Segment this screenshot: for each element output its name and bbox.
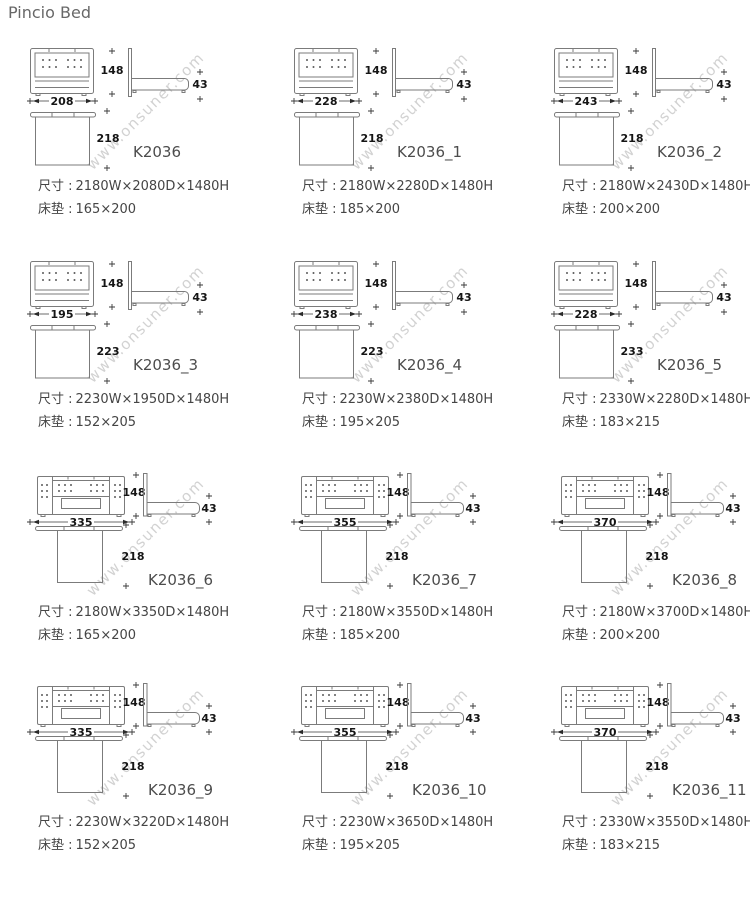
size-value: 2230W×3650D×1480H	[340, 815, 494, 830]
mattress-value: 183×215	[600, 838, 661, 853]
model-name: K2036_4	[397, 356, 462, 374]
height-dimension-line: 148	[365, 48, 388, 97]
height-dimension-line: 148	[101, 48, 124, 97]
side-view	[129, 262, 189, 310]
height-dimension-line: 148	[647, 682, 670, 729]
product-variant-cell: www.onsuner.com	[28, 678, 263, 890]
side-height-dimension: 43	[716, 78, 731, 91]
side-height-dimension-line: 43	[201, 493, 216, 525]
size-label: 尺寸 :	[38, 605, 73, 620]
depth-dimension: 218	[361, 132, 384, 145]
width-dimension: 228	[315, 95, 338, 108]
tufting-dots	[42, 59, 82, 68]
mattress-label: 床垫 :	[38, 202, 73, 217]
model-name: K2036_9	[148, 781, 213, 799]
front-view	[295, 262, 358, 309]
width-dimension: 370	[594, 516, 617, 529]
depth-dimension-line: 218	[361, 108, 384, 171]
width-dimension: 238	[315, 308, 338, 321]
mattress-value: 200×200	[600, 202, 661, 217]
side-height-dimension-line: 43	[192, 282, 207, 315]
mattress-value: 200×200	[600, 628, 661, 643]
depth-dimension-line: 218	[97, 108, 120, 171]
depth-dimension-line: 218	[386, 732, 409, 799]
front-view	[31, 262, 94, 309]
size-spec: 尺寸 :2230W×2380D×1480H	[302, 388, 493, 407]
side-view	[408, 684, 464, 727]
mattress-value: 152×205	[76, 838, 137, 853]
model-name: K2036_8	[672, 571, 737, 589]
size-spec: 尺寸 :2330W×3550D×1480H	[562, 811, 750, 830]
front-view	[302, 687, 389, 727]
mattress-spec: 床垫 :195×205	[302, 834, 400, 853]
depth-dimension: 218	[97, 132, 120, 145]
product-variant-cell: www.onsuner.com 243	[552, 42, 750, 254]
mattress-label: 床垫 :	[562, 415, 597, 430]
mattress-spec: 床垫 :195×205	[302, 411, 400, 430]
mattress-value: 165×200	[76, 202, 137, 217]
size-label: 尺寸 :	[562, 392, 597, 407]
width-dimension-line: 228	[551, 308, 622, 322]
mattress-value: 185×200	[340, 202, 401, 217]
width-dimension: 208	[51, 95, 74, 108]
front-view	[38, 687, 125, 727]
top-view	[295, 326, 360, 379]
mattress-label: 床垫 :	[302, 415, 337, 430]
side-view	[129, 49, 189, 97]
tufting-dots	[306, 272, 346, 281]
model-name: K2036	[133, 143, 181, 161]
depth-dimension-line: 218	[621, 108, 644, 171]
depth-dimension: 218	[122, 760, 145, 773]
depth-dimension-line: 233	[621, 321, 644, 384]
side-height-dimension: 43	[456, 78, 471, 91]
side-view	[653, 262, 713, 310]
depth-dimension-line: 218	[386, 522, 409, 589]
product-variant-cell: www.onsuner.com 228	[552, 255, 750, 467]
size-label: 尺寸 :	[302, 179, 337, 194]
mattress-spec: 床垫 :183×215	[562, 834, 660, 853]
mattress-spec: 床垫 :152×205	[38, 411, 136, 430]
depth-dimension-line: 218	[646, 522, 669, 589]
height-dimension-line: 148	[625, 261, 648, 310]
size-value: 2180W×2080D×1480H	[76, 179, 230, 194]
mattress-spec: 床垫 :200×200	[562, 198, 660, 217]
top-view	[36, 737, 123, 793]
top-view	[555, 113, 620, 166]
size-value: 2330W×2280D×1480H	[600, 392, 750, 407]
width-dimension-line: 243	[551, 95, 622, 109]
mattress-label: 床垫 :	[302, 838, 337, 853]
mattress-spec: 床垫 :165×200	[38, 624, 136, 643]
width-dimension: 370	[594, 726, 617, 739]
side-height-dimension-line: 43	[716, 69, 731, 102]
depth-dimension-line: 223	[97, 321, 120, 384]
width-dimension: 243	[575, 95, 598, 108]
side-height-dimension: 43	[725, 712, 740, 725]
front-view	[555, 49, 618, 96]
height-dimension-line: 148	[123, 472, 146, 519]
height-dimension: 148	[123, 696, 146, 709]
height-dimension: 148	[101, 64, 124, 77]
mattress-value: 183×215	[600, 415, 661, 430]
product-variant-cell: www.onsuner.com	[28, 468, 263, 680]
side-height-dimension: 43	[192, 291, 207, 304]
product-grid: www.onsuner.com 208	[0, 0, 750, 897]
size-spec: 尺寸 :2180W×2430D×1480H	[562, 175, 750, 194]
width-dimension-line: 195	[27, 308, 98, 322]
height-dimension: 148	[365, 277, 388, 290]
side-height-dimension: 43	[456, 291, 471, 304]
size-spec: 尺寸 :2180W×2080D×1480H	[38, 175, 229, 194]
front-view	[295, 49, 358, 96]
size-spec: 尺寸 :2180W×3350D×1480H	[38, 601, 229, 620]
size-label: 尺寸 :	[562, 179, 597, 194]
size-label: 尺寸 :	[38, 179, 73, 194]
model-name: K2036_5	[657, 356, 722, 374]
side-height-dimension-line: 43	[456, 69, 471, 102]
depth-dimension: 218	[122, 550, 145, 563]
width-dimension-line: 228	[291, 95, 362, 109]
depth-dimension: 218	[386, 760, 409, 773]
height-dimension-line: 148	[123, 682, 146, 729]
height-dimension: 148	[647, 486, 670, 499]
size-value: 2230W×2380D×1480H	[340, 392, 494, 407]
top-view	[36, 527, 123, 583]
height-dimension: 148	[625, 64, 648, 77]
bed-technical-drawing: 355 148 43 218	[292, 468, 527, 600]
product-variant-cell: www.onsuner.com	[552, 468, 750, 680]
size-spec: 尺寸 :2230W×1950D×1480H	[38, 388, 229, 407]
product-variant-cell: www.onsuner.com	[292, 468, 527, 680]
depth-dimension: 218	[621, 132, 644, 145]
side-height-dimension: 43	[201, 502, 216, 515]
side-height-dimension-line: 43	[192, 69, 207, 102]
mattress-spec: 床垫 :200×200	[562, 624, 660, 643]
top-view	[560, 527, 647, 583]
top-view	[560, 737, 647, 793]
mattress-label: 床垫 :	[562, 628, 597, 643]
mattress-value: 195×205	[340, 415, 401, 430]
height-dimension: 148	[123, 486, 146, 499]
depth-dimension-line: 218	[646, 732, 669, 799]
size-spec: 尺寸 :2180W×3700D×1480H	[562, 601, 750, 620]
size-label: 尺寸 :	[302, 815, 337, 830]
size-value: 2230W×3220D×1480H	[76, 815, 230, 830]
side-view	[408, 474, 464, 517]
product-variant-cell: www.onsuner.com	[552, 678, 750, 890]
side-view	[144, 474, 200, 517]
side-height-dimension: 43	[192, 78, 207, 91]
side-view	[393, 49, 453, 97]
mattress-label: 床垫 :	[302, 202, 337, 217]
tufting-dots	[566, 59, 606, 68]
bed-technical-drawing: 355 148 43 218	[292, 678, 527, 810]
side-height-dimension: 43	[201, 712, 216, 725]
side-height-dimension: 43	[716, 291, 731, 304]
top-view	[555, 326, 620, 379]
width-dimension: 195	[51, 308, 74, 321]
mattress-label: 床垫 :	[562, 202, 597, 217]
size-value: 2180W×3700D×1480H	[600, 605, 750, 620]
model-name: K2036_3	[133, 356, 198, 374]
side-view	[668, 474, 724, 517]
width-dimension: 355	[334, 726, 357, 739]
top-view	[295, 113, 360, 166]
mattress-spec: 床垫 :152×205	[38, 834, 136, 853]
mattress-spec: 床垫 :183×215	[562, 411, 660, 430]
depth-dimension: 223	[361, 345, 384, 358]
mattress-label: 床垫 :	[562, 838, 597, 853]
product-variant-cell: www.onsuner.com 228	[292, 42, 527, 254]
width-dimension: 335	[70, 516, 93, 529]
depth-dimension-line: 223	[361, 321, 384, 384]
model-name: K2036_7	[412, 571, 477, 589]
depth-dimension-line: 218	[122, 732, 145, 799]
tufting-dots	[566, 272, 606, 281]
side-height-dimension: 43	[725, 502, 740, 515]
size-label: 尺寸 :	[38, 815, 73, 830]
side-height-dimension: 43	[465, 502, 480, 515]
side-view	[393, 262, 453, 310]
model-name: K2036_11	[672, 781, 747, 799]
tufting-dots	[42, 272, 82, 281]
mattress-label: 床垫 :	[38, 415, 73, 430]
depth-dimension: 223	[97, 345, 120, 358]
height-dimension: 148	[387, 696, 410, 709]
size-value: 2180W×2430D×1480H	[600, 179, 750, 194]
product-variant-cell: www.onsuner.com 195	[28, 255, 263, 467]
depth-dimension: 218	[646, 760, 669, 773]
side-height-dimension-line: 43	[465, 703, 480, 735]
height-dimension: 148	[365, 64, 388, 77]
side-height-dimension-line: 43	[201, 703, 216, 735]
width-dimension: 355	[334, 516, 357, 529]
height-dimension: 148	[647, 696, 670, 709]
size-spec: 尺寸 :2330W×2280D×1480H	[562, 388, 750, 407]
size-label: 尺寸 :	[562, 815, 597, 830]
side-height-dimension-line: 43	[725, 703, 740, 735]
height-dimension-line: 148	[625, 48, 648, 97]
tufting-dots	[306, 59, 346, 68]
size-value: 2180W×2280D×1480H	[340, 179, 494, 194]
depth-dimension: 218	[646, 550, 669, 563]
width-dimension-line: 208	[27, 95, 98, 109]
depth-dimension: 233	[621, 345, 644, 358]
size-spec: 尺寸 :2180W×2280D×1480H	[302, 175, 493, 194]
mattress-value: 165×200	[76, 628, 137, 643]
bed-technical-drawing: 335 148 43 218	[28, 468, 263, 600]
depth-dimension: 218	[386, 550, 409, 563]
top-view	[31, 326, 96, 379]
top-view	[31, 113, 96, 166]
front-view	[562, 477, 649, 517]
model-name: K2036_6	[148, 571, 213, 589]
product-variant-cell: www.onsuner.com 208	[28, 42, 263, 254]
size-value: 2230W×1950D×1480H	[76, 392, 230, 407]
height-dimension: 148	[625, 277, 648, 290]
height-dimension-line: 148	[365, 261, 388, 310]
size-spec: 尺寸 :2180W×3550D×1480H	[302, 601, 493, 620]
front-view	[31, 49, 94, 96]
width-dimension: 228	[575, 308, 598, 321]
mattress-spec: 床垫 :165×200	[38, 198, 136, 217]
model-name: K2036_10	[412, 781, 487, 799]
front-view	[555, 262, 618, 309]
side-height-dimension-line: 43	[456, 282, 471, 315]
front-view	[562, 687, 649, 727]
side-view	[668, 684, 724, 727]
mattress-value: 185×200	[340, 628, 401, 643]
size-value: 2180W×3350D×1480H	[76, 605, 230, 620]
side-view	[144, 684, 200, 727]
side-view	[653, 49, 713, 97]
size-spec: 尺寸 :2230W×3220D×1480H	[38, 811, 229, 830]
height-dimension: 148	[101, 277, 124, 290]
mattress-spec: 床垫 :185×200	[302, 624, 400, 643]
size-label: 尺寸 :	[302, 392, 337, 407]
mattress-label: 床垫 :	[302, 628, 337, 643]
side-height-dimension: 43	[465, 712, 480, 725]
size-spec: 尺寸 :2230W×3650D×1480H	[302, 811, 493, 830]
size-label: 尺寸 :	[562, 605, 597, 620]
spec-sheet-page: Pincio Bed www.onsuner.com 208	[0, 0, 750, 897]
front-view	[302, 477, 389, 517]
height-dimension-line: 148	[387, 472, 410, 519]
product-variant-cell: www.onsuner.com 238	[292, 255, 527, 467]
side-height-dimension-line: 43	[725, 493, 740, 525]
depth-dimension-line: 218	[122, 522, 145, 589]
size-value: 2180W×3550D×1480H	[340, 605, 494, 620]
product-variant-cell: www.onsuner.com	[292, 678, 527, 890]
height-dimension: 148	[387, 486, 410, 499]
size-label: 尺寸 :	[38, 392, 73, 407]
height-dimension-line: 148	[647, 472, 670, 519]
width-dimension: 335	[70, 726, 93, 739]
mattress-value: 195×205	[340, 838, 401, 853]
mattress-value: 152×205	[76, 415, 137, 430]
top-view	[300, 527, 387, 583]
width-dimension-line: 238	[291, 308, 362, 322]
mattress-label: 床垫 :	[38, 628, 73, 643]
size-value: 2330W×3550D×1480H	[600, 815, 750, 830]
side-height-dimension-line: 43	[716, 282, 731, 315]
size-label: 尺寸 :	[302, 605, 337, 620]
model-name: K2036_2	[657, 143, 722, 161]
mattress-spec: 床垫 :185×200	[302, 198, 400, 217]
top-view	[300, 737, 387, 793]
mattress-label: 床垫 :	[38, 838, 73, 853]
height-dimension-line: 148	[387, 682, 410, 729]
side-height-dimension-line: 43	[465, 493, 480, 525]
model-name: K2036_1	[397, 143, 462, 161]
bed-technical-drawing: 335 148 43 218	[28, 678, 263, 810]
height-dimension-line: 148	[101, 261, 124, 310]
front-view	[38, 477, 125, 517]
